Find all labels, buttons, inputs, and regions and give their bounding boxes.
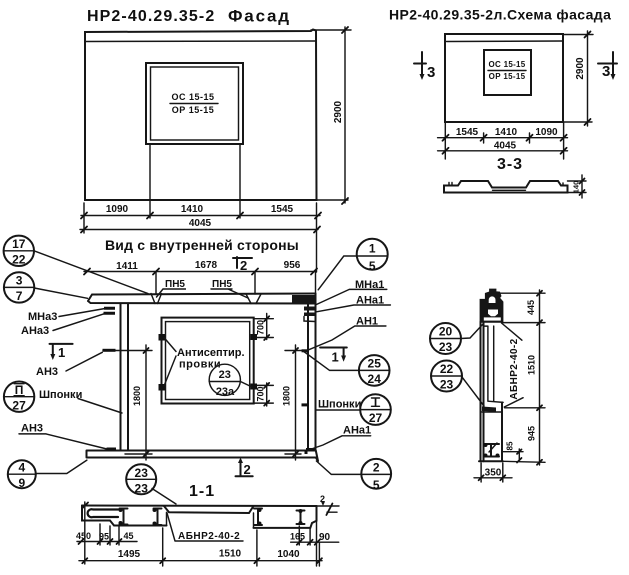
svg-text:45: 45: [123, 531, 133, 541]
svg-text:1410: 1410: [181, 204, 204, 215]
svg-text:1410: 1410: [495, 127, 518, 138]
svg-text:7: 7: [16, 289, 23, 303]
svg-text:1545: 1545: [271, 204, 294, 215]
svg-text:2: 2: [240, 258, 247, 273]
svg-text:АБНР2-40-2: АБНР2-40-2: [509, 338, 520, 399]
svg-text:22: 22: [440, 362, 454, 376]
svg-text:23: 23: [219, 369, 231, 381]
svg-text:3: 3: [427, 64, 435, 81]
svg-text:АН3: АН3: [21, 423, 43, 435]
svg-text:4: 4: [18, 460, 25, 474]
svg-text:ОР 15-15: ОР 15-15: [489, 72, 526, 81]
svg-text:700: 700: [256, 386, 266, 401]
svg-text:700: 700: [256, 320, 266, 335]
svg-text:25: 25: [368, 357, 382, 371]
svg-text:1: 1: [332, 350, 339, 365]
svg-text:П: П: [15, 383, 24, 397]
svg-text:85: 85: [505, 441, 514, 450]
svg-text:2: 2: [373, 461, 380, 475]
svg-text:ОР 15-15: ОР 15-15: [172, 105, 215, 115]
svg-text:22: 22: [12, 253, 26, 267]
svg-text:АНа3: АНа3: [21, 325, 49, 337]
svg-text:2: 2: [244, 462, 251, 477]
svg-text:1510: 1510: [527, 355, 537, 375]
svg-text:1090: 1090: [535, 127, 558, 138]
svg-text:17: 17: [12, 237, 26, 251]
svg-text:1040: 1040: [277, 549, 300, 560]
svg-text:23: 23: [440, 378, 454, 392]
svg-text:2900: 2900: [333, 100, 344, 123]
svg-text:3-3: 3-3: [497, 156, 523, 173]
svg-text:140: 140: [572, 181, 581, 194]
svg-text:23а: 23а: [216, 386, 235, 398]
svg-text:4045: 4045: [494, 141, 517, 152]
svg-text:165: 165: [290, 532, 305, 542]
svg-text:АНа1: АНа1: [343, 425, 371, 437]
svg-text:1-1: 1-1: [189, 483, 215, 500]
svg-text:1800: 1800: [282, 386, 292, 406]
svg-text:350: 350: [485, 468, 502, 479]
svg-text:НР2-40.29.35-2л.Схема фасада: НР2-40.29.35-2л.Схема фасада: [389, 7, 611, 23]
svg-text:Шпонки: Шпонки: [318, 399, 361, 411]
svg-text:956: 956: [284, 260, 301, 271]
svg-text:1545: 1545: [456, 127, 479, 138]
svg-text:9: 9: [18, 476, 25, 490]
svg-text:Антисептир.: Антисептир.: [177, 347, 245, 359]
svg-text:90: 90: [319, 532, 331, 543]
svg-text:Фасад: Фасад: [228, 7, 291, 26]
svg-text:3: 3: [16, 274, 23, 288]
svg-text:4045: 4045: [189, 218, 212, 229]
svg-text:ОС 15-15: ОС 15-15: [488, 60, 525, 69]
svg-text:23: 23: [439, 340, 453, 354]
svg-text:27: 27: [369, 411, 383, 425]
svg-text:5: 5: [373, 478, 380, 492]
svg-text:95: 95: [99, 532, 109, 542]
svg-text:1: 1: [58, 345, 65, 360]
svg-text:5: 5: [369, 259, 376, 273]
svg-text:945: 945: [527, 426, 537, 441]
svg-text:1678: 1678: [195, 260, 218, 271]
svg-text:24: 24: [368, 372, 382, 386]
svg-text:НР2-40.29.35-2: НР2-40.29.35-2: [87, 8, 215, 25]
svg-text:3: 3: [602, 63, 610, 80]
svg-text:1800: 1800: [132, 386, 142, 406]
svg-text:2900: 2900: [575, 57, 586, 80]
svg-text:ОС 15-15: ОС 15-15: [171, 92, 214, 102]
svg-text:1: 1: [369, 242, 376, 256]
svg-text:1090: 1090: [106, 204, 129, 215]
svg-text:445: 445: [526, 300, 536, 315]
svg-text:27: 27: [12, 399, 26, 413]
svg-text:Шпонки: Шпонки: [39, 389, 82, 401]
svg-text:1495: 1495: [118, 549, 141, 560]
svg-text:1510: 1510: [219, 549, 242, 560]
svg-text:450: 450: [76, 531, 91, 541]
svg-text:20: 20: [439, 325, 453, 339]
svg-text:Вид с внутренней стороны: Вид с внутренней стороны: [105, 237, 299, 253]
svg-text:АН3: АН3: [36, 366, 58, 378]
svg-text:1411: 1411: [116, 261, 138, 272]
svg-text:23: 23: [135, 466, 149, 480]
svg-text:23: 23: [135, 481, 149, 495]
svg-text:МНа3: МНа3: [28, 311, 57, 323]
